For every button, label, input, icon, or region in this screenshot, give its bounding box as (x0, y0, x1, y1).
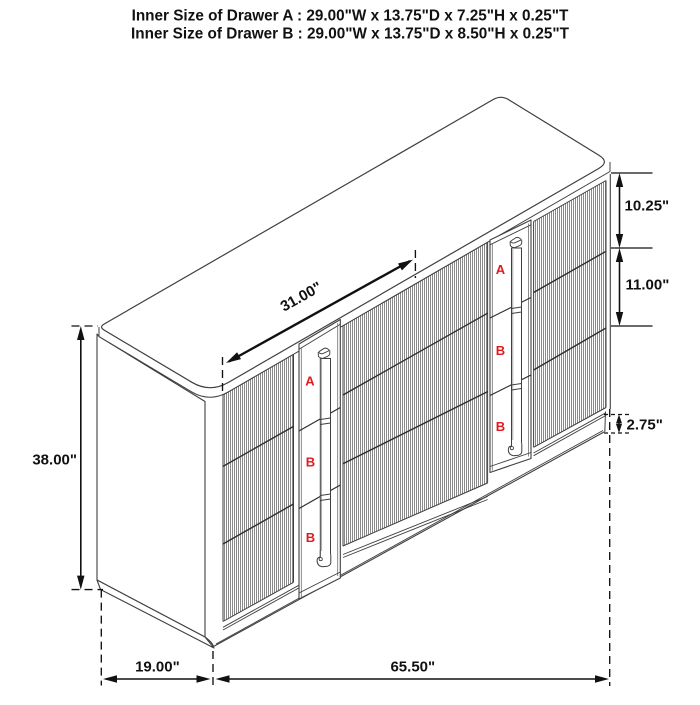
svg-text:B: B (306, 455, 315, 470)
svg-text:11.00": 11.00" (626, 277, 670, 294)
svg-text:B: B (496, 343, 505, 358)
svg-text:19.00": 19.00" (135, 659, 180, 676)
svg-text:B: B (496, 419, 505, 434)
svg-text:10.25": 10.25" (625, 198, 670, 215)
svg-text:2.75": 2.75" (627, 417, 663, 434)
svg-text:38.00": 38.00" (32, 452, 77, 469)
svg-text:Inner Size of Drawer A : 29.00: Inner Size of Drawer A : 29.00"W x 13.75… (132, 8, 569, 25)
svg-text:Inner Size of Drawer B : 29.00: Inner Size of Drawer B : 29.00"W x 13.75… (131, 26, 570, 43)
svg-text:65.50": 65.50" (390, 659, 435, 676)
svg-text:B: B (306, 530, 315, 545)
svg-text:A: A (496, 262, 506, 277)
svg-text:A: A (305, 374, 315, 389)
